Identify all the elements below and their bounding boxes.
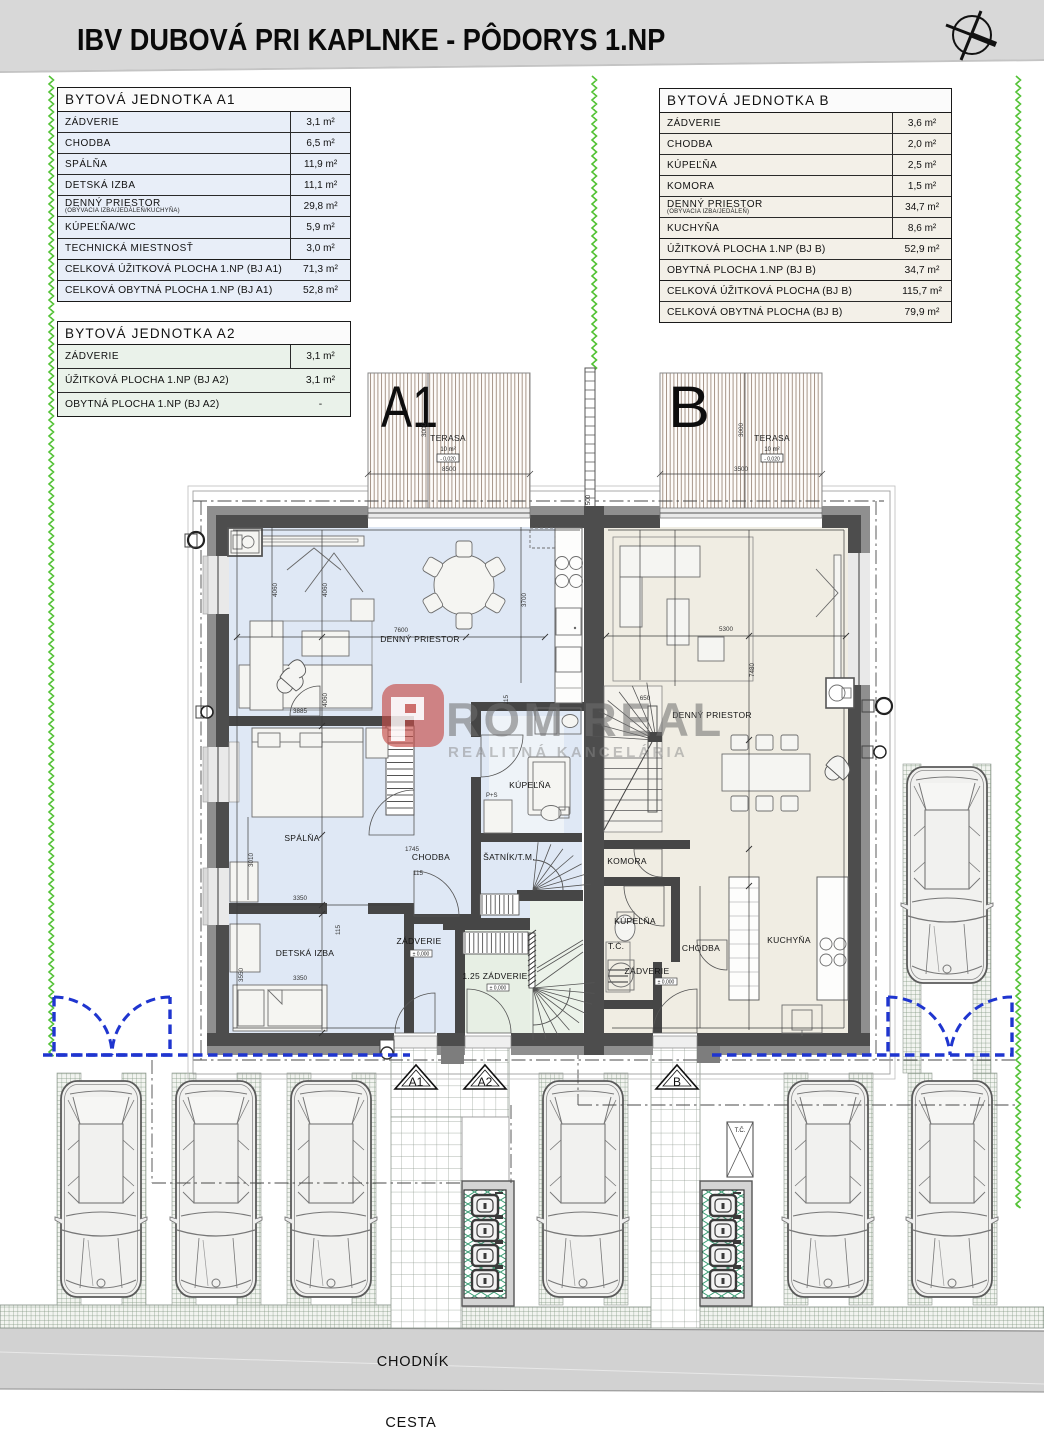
svg-text:- 0,020: - 0,020 <box>440 457 456 463</box>
svg-text:A1: A1 <box>381 375 438 440</box>
svg-text:4060: 4060 <box>272 583 279 598</box>
svg-text:T.Č.: T.Č. <box>608 941 624 951</box>
svg-text:TERASA: TERASA <box>430 433 466 443</box>
svg-text:A2: A2 <box>478 1075 493 1089</box>
svg-text:SPÁLŇA: SPÁLŇA <box>284 833 319 843</box>
svg-text:115: 115 <box>335 924 342 935</box>
svg-text:KÚPEĽŇA: KÚPEĽŇA <box>614 916 656 926</box>
svg-text:ROM REAL: ROM REAL <box>446 693 725 746</box>
svg-text:A1: A1 <box>409 1075 424 1089</box>
svg-text:4060: 4060 <box>322 583 329 598</box>
svg-text:CHODNÍK: CHODNÍK <box>377 1353 449 1370</box>
svg-text:ZÁDVERIE: ZÁDVERIE <box>625 966 670 976</box>
svg-text:± 0,000: ± 0,000 <box>413 952 430 958</box>
svg-text:8500: 8500 <box>442 466 457 473</box>
svg-text:1745: 1745 <box>405 846 420 853</box>
svg-text:ŠATNÍK/T.M.: ŠATNÍK/T.M. <box>483 852 535 862</box>
svg-text:10 m²: 10 m² <box>440 447 455 453</box>
svg-text:3700: 3700 <box>521 593 528 608</box>
svg-text:ZÁDVERIE: ZÁDVERIE <box>397 936 442 946</box>
svg-text:3885: 3885 <box>293 708 308 715</box>
svg-text:3000: 3000 <box>738 423 745 438</box>
svg-text:KUCHYŇA: KUCHYŇA <box>767 935 811 945</box>
svg-text:7600: 7600 <box>394 627 409 634</box>
svg-text:10 m²: 10 m² <box>764 447 779 453</box>
svg-text:± 0,000: ± 0,000 <box>658 980 675 986</box>
svg-text:T.Č.: T.Č. <box>735 1127 746 1134</box>
svg-text:3350: 3350 <box>293 895 308 902</box>
svg-text:TERASA: TERASA <box>754 433 790 443</box>
svg-text:KÚPEĽŇA: KÚPEĽŇA <box>509 780 551 790</box>
svg-text:- 0,020: - 0,020 <box>764 457 780 463</box>
svg-text:3000: 3000 <box>421 423 428 438</box>
svg-text:DETSKÁ IZBA: DETSKÁ IZBA <box>276 948 335 958</box>
svg-text:P+S: P+S <box>486 793 498 799</box>
svg-text:B: B <box>673 1075 681 1089</box>
svg-text:1.25 ZÁDVERIE: 1.25 ZÁDVERIE <box>462 971 527 981</box>
svg-text:REALITNÁ KANCELÁRIA: REALITNÁ KANCELÁRIA <box>448 744 688 761</box>
svg-text:CHODBA: CHODBA <box>682 943 720 953</box>
svg-text:CHODBA: CHODBA <box>412 852 450 862</box>
svg-text:3500: 3500 <box>734 466 749 473</box>
svg-text:DENNÝ PRIESTOR: DENNÝ PRIESTOR <box>380 634 460 644</box>
svg-text:7480: 7480 <box>749 663 756 678</box>
svg-text:± 0,000: ± 0,000 <box>490 986 507 992</box>
svg-text:4060: 4060 <box>322 693 329 708</box>
svg-text:5300: 5300 <box>719 626 734 633</box>
svg-text:500: 500 <box>585 494 592 505</box>
svg-text:3010: 3010 <box>248 853 255 868</box>
svg-text:B: B <box>668 375 710 440</box>
svg-text:3550: 3550 <box>238 968 245 983</box>
svg-text:115: 115 <box>413 870 424 877</box>
svg-text:CESTA: CESTA <box>385 1415 436 1431</box>
svg-text:KOMORA: KOMORA <box>607 856 647 866</box>
svg-text:3350: 3350 <box>293 975 308 982</box>
